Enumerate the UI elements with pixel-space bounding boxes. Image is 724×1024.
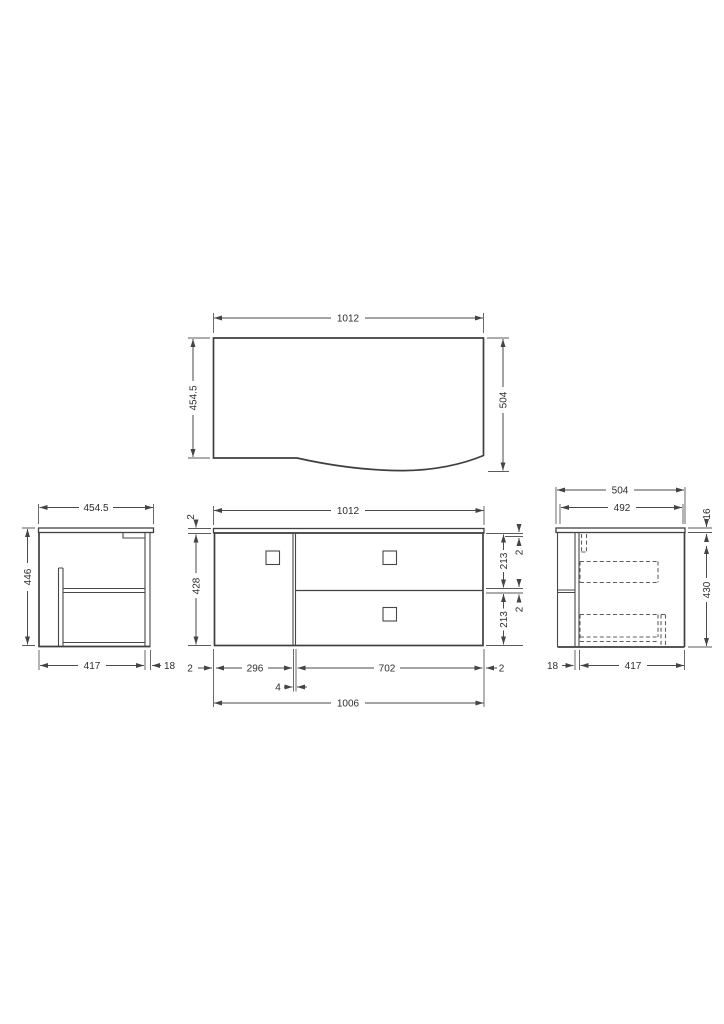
front-view: 1012 2 428 2 213 2 213 2 296 702 2 bbox=[186, 506, 526, 710]
countertop-outline bbox=[214, 338, 484, 471]
dim-front-drawers-w: 702 bbox=[379, 664, 396, 675]
hidden-top-drawer-box bbox=[580, 562, 658, 583]
counter-underside-notch bbox=[123, 533, 145, 539]
dim-front-edge-r: 2 bbox=[499, 664, 505, 675]
dim-front-height: 428 bbox=[192, 577, 203, 594]
dim-front-top-gap: 2 bbox=[186, 514, 197, 520]
left-side-view: 454.5 446 417 18 bbox=[22, 503, 175, 672]
dim-left-height: 446 bbox=[23, 568, 34, 585]
dim-left-back-panel: 18 bbox=[164, 661, 176, 672]
shelf-profile bbox=[63, 589, 145, 593]
top-drawer-handle bbox=[383, 551, 397, 565]
hidden-waste-slot bbox=[661, 615, 666, 647]
dim-front-drawer-a: 213 bbox=[499, 552, 510, 569]
dim-right-body-h: 430 bbox=[702, 581, 713, 598]
hidden-drawer-runner bbox=[582, 534, 587, 552]
drawer-fronts-profile bbox=[558, 533, 580, 648]
dim-plan-depth-left: 454.5 bbox=[189, 385, 200, 410]
dim-right-body-depth: 417 bbox=[625, 661, 642, 672]
dim-front-gap-b: 2 bbox=[515, 606, 526, 612]
door-panel-profile bbox=[59, 568, 64, 647]
right-side-view: 504 492 16 430 18 417 bbox=[547, 486, 713, 673]
dim-plan-width: 1012 bbox=[337, 314, 360, 325]
extension-lines bbox=[22, 528, 35, 646]
side-body-outline bbox=[39, 533, 151, 647]
dim-plan-depth-right: 504 bbox=[499, 391, 510, 408]
dim-front-door-w: 296 bbox=[247, 664, 264, 675]
hidden-bottom-drawer-box bbox=[580, 615, 658, 642]
extension-lines bbox=[688, 528, 712, 533]
door-handle bbox=[266, 551, 280, 565]
dim-right-counter-th: 16 bbox=[702, 508, 713, 520]
dim-left-body-depth: 417 bbox=[84, 661, 101, 672]
dim-right-inner: 492 bbox=[614, 503, 631, 514]
dim-front-body-w: 1006 bbox=[337, 699, 360, 710]
dim-left-depth: 454.5 bbox=[83, 503, 108, 514]
back-panel bbox=[145, 533, 150, 647]
plan-view: 1012 454.5 504 bbox=[188, 313, 510, 472]
dim-front-edge-l: 2 bbox=[187, 664, 193, 675]
vanity-drawing-svg: 1012 454.5 504 1012 2 428 bbox=[0, 0, 724, 1024]
dim-front-drawer-b: 213 bbox=[499, 611, 510, 628]
dim-front-gap-c: 4 bbox=[275, 683, 281, 694]
bottom-drawer-handle bbox=[383, 608, 397, 622]
dim-right-front-off: 18 bbox=[547, 661, 559, 672]
technical-drawing-page: 1012 454.5 504 1012 2 428 bbox=[0, 0, 724, 1024]
countertop-side-profile bbox=[556, 528, 685, 533]
dim-front-gap-a: 2 bbox=[515, 549, 526, 555]
dim-right-counter: 504 bbox=[612, 486, 629, 497]
countertop-side-profile bbox=[39, 528, 154, 533]
cabinet-body bbox=[215, 533, 484, 646]
door-drawer-divider bbox=[293, 533, 296, 646]
dim-front-width: 1012 bbox=[337, 506, 360, 517]
